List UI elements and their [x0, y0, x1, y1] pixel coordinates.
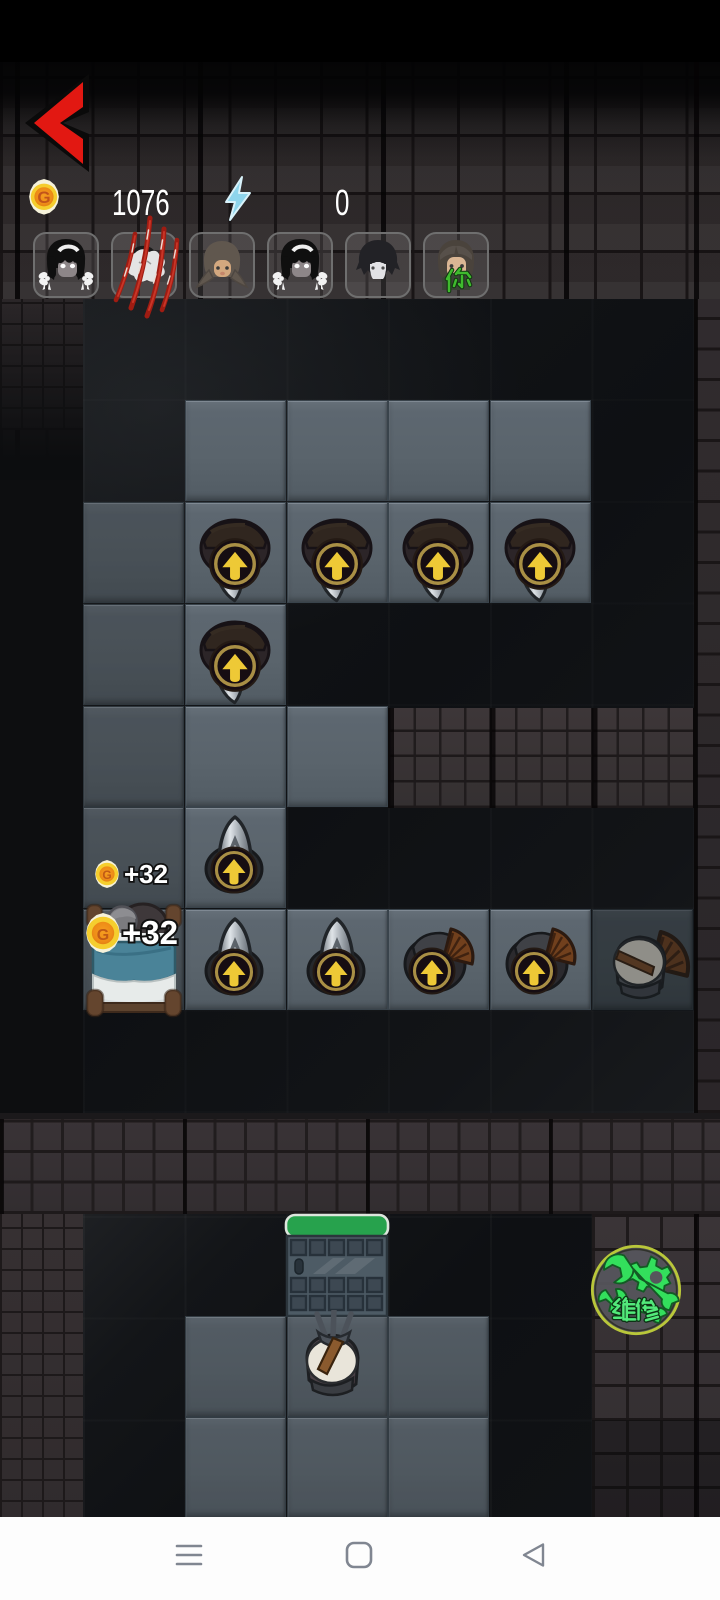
svg-text:G: G [102, 868, 111, 882]
svg-text:+32: +32 [122, 914, 178, 951]
svg-text:G: G [97, 927, 109, 944]
svg-text:G: G [37, 188, 50, 207]
svg-text:+32: +32 [124, 859, 168, 889]
